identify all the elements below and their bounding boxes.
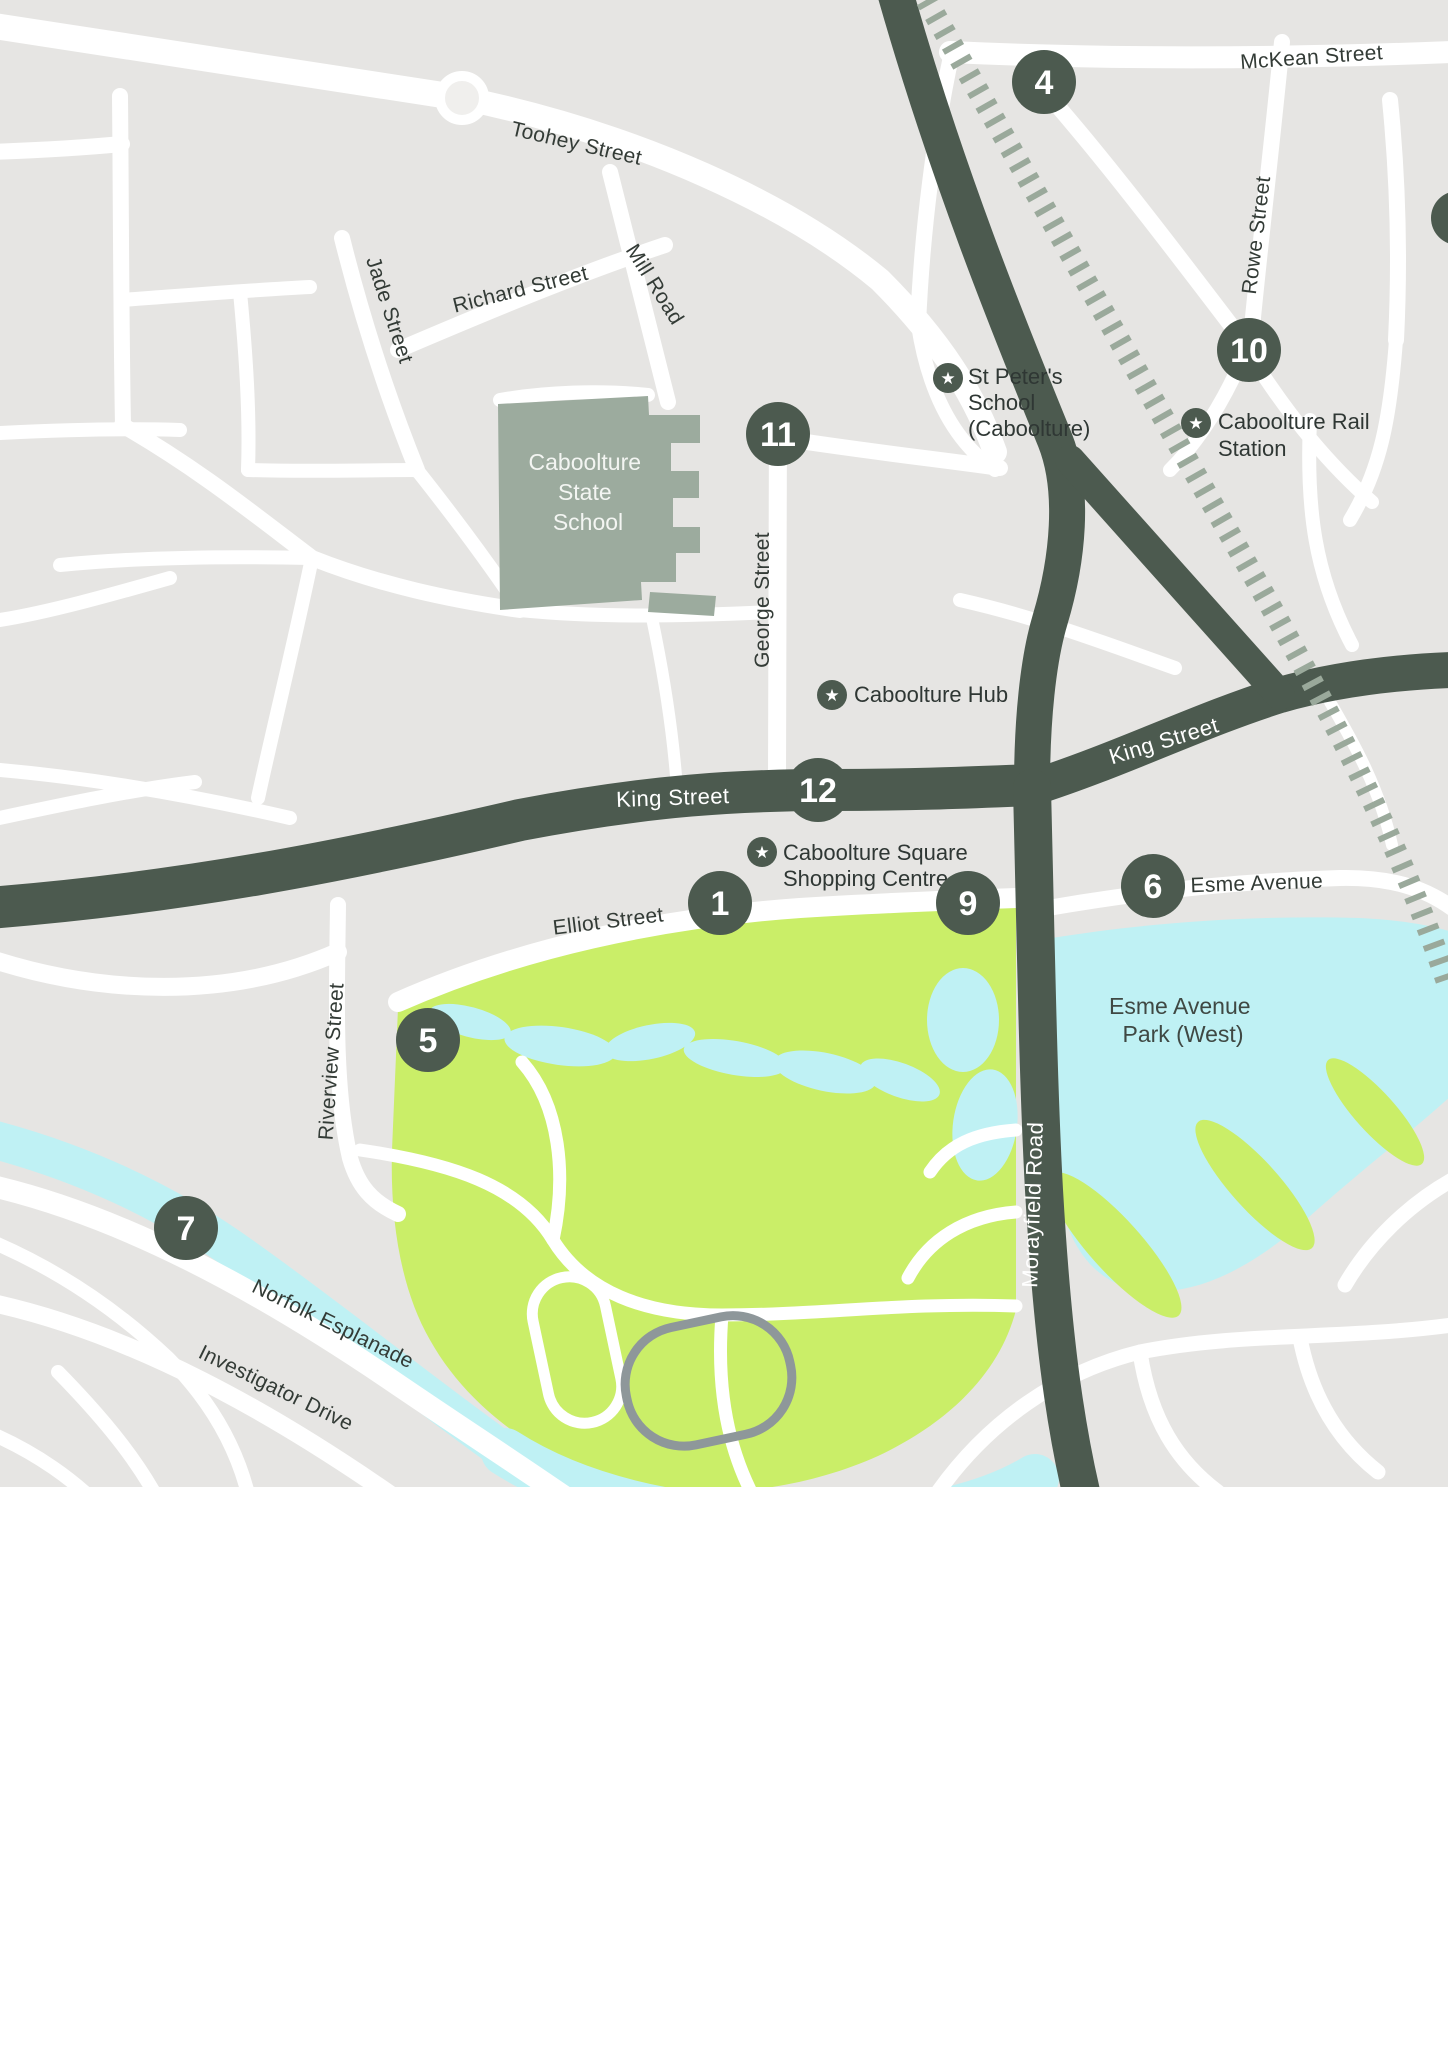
street-label-george-street: George Street	[751, 532, 774, 668]
marker-6: 6	[1121, 854, 1185, 918]
infographic-page: Toohey Street McKean Street Rowe Street …	[0, 0, 1448, 2048]
marker-1: 1	[688, 871, 752, 935]
legend-section: $44 MILLION FOR CABOOLTURE PROJECTS OVER…	[0, 1487, 1448, 2048]
poi-label: Caboolture Hub	[854, 682, 1008, 707]
svg-text:4: 4	[1035, 64, 1054, 102]
marker-9: 9	[936, 871, 1000, 935]
svg-text:11: 11	[760, 416, 796, 454]
svg-text:7: 7	[177, 1210, 196, 1248]
star-icon: ★	[824, 686, 839, 705]
roundabout	[440, 76, 484, 120]
svg-text:9: 9	[959, 885, 978, 923]
marker-11: 11	[746, 402, 810, 466]
star-icon: ★	[940, 369, 955, 388]
marker-12: 12	[786, 758, 850, 822]
street-label-king-street-west: King Street	[616, 783, 730, 812]
svg-text:6: 6	[1144, 868, 1163, 906]
caboolture-map: Toohey Street McKean Street Rowe Street …	[0, 0, 1448, 1487]
marker-5: 5	[396, 1008, 460, 1072]
svg-text:1: 1	[711, 885, 730, 923]
svg-text:10: 10	[1230, 332, 1268, 370]
marker-7: 7	[154, 1196, 218, 1260]
star-icon: ★	[754, 843, 769, 862]
marker-4: 4	[1012, 50, 1076, 114]
park-centenary-lakes	[392, 902, 1016, 1487]
svg-text:5: 5	[419, 1022, 438, 1060]
map-svg: Toohey Street McKean Street Rowe Street …	[0, 0, 1448, 1487]
street-label-esme-avenue: Esme Avenue	[1190, 870, 1323, 898]
road-george-street	[777, 415, 778, 778]
star-icon: ★	[1188, 414, 1203, 433]
marker-10: 10	[1217, 318, 1281, 382]
svg-text:12: 12	[799, 772, 837, 810]
